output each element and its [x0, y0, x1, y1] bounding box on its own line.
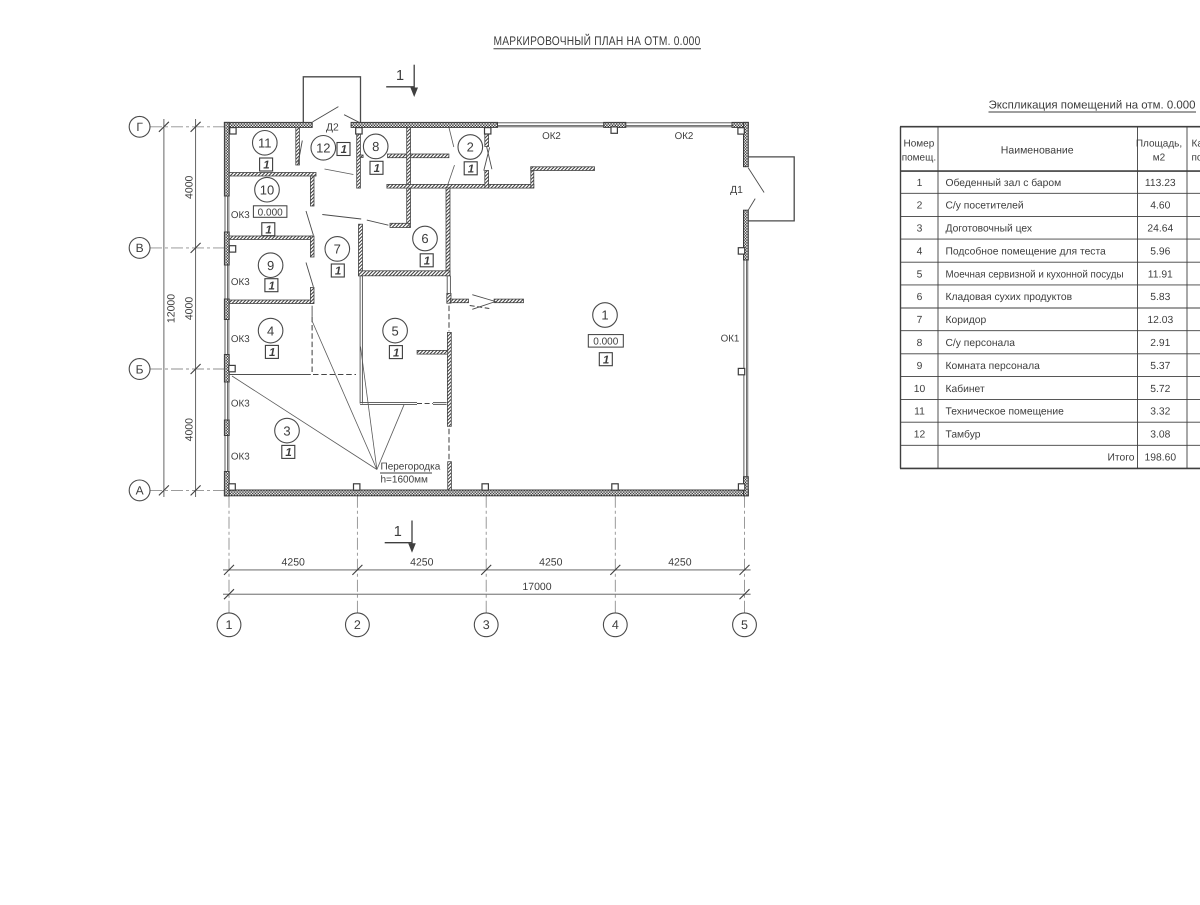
svg-text:3: 3	[917, 224, 923, 235]
svg-text:6: 6	[917, 292, 923, 303]
svg-text:1: 1	[393, 347, 399, 359]
svg-text:11.91: 11.91	[1148, 269, 1173, 280]
svg-text:10: 10	[260, 182, 274, 197]
svg-text:Итого: Итого	[1108, 453, 1135, 464]
svg-text:3.08: 3.08	[1150, 430, 1170, 441]
svg-text:5.72: 5.72	[1150, 384, 1170, 395]
svg-text:4000: 4000	[184, 297, 196, 321]
svg-text:В: В	[136, 241, 144, 255]
svg-text:ОК3: ОК3	[231, 277, 250, 288]
svg-text:С/у посетителей: С/у посетителей	[946, 201, 1024, 212]
svg-text:11: 11	[258, 136, 272, 151]
svg-text:4250: 4250	[668, 557, 692, 569]
svg-text:24.64: 24.64	[1147, 224, 1173, 235]
svg-text:м2: м2	[1153, 153, 1166, 164]
svg-text:1: 1	[396, 68, 404, 84]
svg-text:3: 3	[483, 618, 490, 632]
svg-text:8: 8	[372, 139, 379, 154]
svg-text:9: 9	[917, 361, 923, 372]
svg-text:h=1600мм: h=1600мм	[381, 474, 429, 485]
svg-text:Д1: Д1	[730, 185, 743, 196]
svg-text:4000: 4000	[184, 418, 196, 442]
svg-text:Перегородка: Перегородка	[381, 461, 441, 472]
svg-text:Кабинет: Кабинет	[946, 384, 985, 395]
svg-text:4250: 4250	[410, 557, 434, 569]
svg-text:5: 5	[391, 323, 398, 338]
svg-text:12: 12	[914, 430, 926, 441]
svg-text:12000: 12000	[166, 294, 178, 323]
svg-text:по: по	[1192, 153, 1200, 164]
svg-text:С/у персонала: С/у персонала	[946, 338, 1016, 349]
svg-text:Площадь,: Площадь,	[1136, 139, 1182, 150]
svg-text:Кладовая сухих продуктов: Кладовая сухих продуктов	[946, 292, 1073, 303]
svg-text:ОК1: ОК1	[721, 334, 740, 345]
svg-text:3: 3	[283, 423, 290, 438]
svg-text:1: 1	[917, 178, 923, 189]
svg-text:4000: 4000	[184, 175, 196, 199]
svg-text:1: 1	[374, 163, 380, 175]
svg-text:Подсобное помещение для теста: Подсобное помещение для теста	[946, 246, 1107, 257]
svg-text:5.96: 5.96	[1150, 246, 1170, 257]
svg-text:1: 1	[265, 224, 271, 236]
svg-text:МАРКИРОВОЧНЫЙ ПЛАН НА ОТМ. 0.0: МАРКИРОВОЧНЫЙ ПЛАН НА ОТМ. 0.000	[494, 33, 701, 48]
svg-text:ОК3: ОК3	[231, 452, 250, 463]
svg-text:5: 5	[917, 269, 923, 280]
svg-text:Наименование: Наименование	[1001, 145, 1074, 157]
svg-text:Техническое помещение: Техническое помещение	[946, 407, 1065, 418]
svg-text:Г: Г	[136, 120, 143, 134]
svg-text:Экспликация помещений на отм.: Экспликация помещений на отм. 0.000	[989, 99, 1196, 111]
svg-text:1: 1	[394, 524, 402, 540]
svg-text:6: 6	[421, 231, 428, 246]
svg-text:12: 12	[316, 141, 330, 156]
svg-text:1: 1	[468, 164, 474, 176]
svg-text:ОК3: ОК3	[231, 334, 250, 345]
svg-text:17000: 17000	[522, 581, 551, 593]
svg-text:1: 1	[226, 618, 233, 632]
svg-text:198.60: 198.60	[1145, 453, 1177, 464]
svg-text:Обеденный зал с баром: Обеденный зал с баром	[946, 178, 1062, 189]
svg-text:10: 10	[914, 384, 926, 395]
svg-text:4: 4	[612, 618, 619, 632]
svg-text:5.83: 5.83	[1150, 292, 1170, 303]
svg-text:0.000: 0.000	[593, 337, 618, 348]
svg-text:1: 1	[601, 308, 608, 323]
svg-text:4250: 4250	[539, 557, 563, 569]
svg-text:Ка: Ка	[1192, 139, 1200, 150]
svg-text:Номер: Номер	[904, 139, 935, 150]
svg-text:0.000: 0.000	[258, 207, 283, 218]
svg-text:4: 4	[267, 323, 274, 338]
svg-text:8: 8	[917, 338, 923, 349]
svg-text:113.23: 113.23	[1145, 178, 1176, 189]
svg-text:4250: 4250	[282, 557, 306, 569]
svg-text:Тамбур: Тамбур	[946, 430, 981, 441]
svg-text:А: А	[136, 484, 144, 498]
svg-text:1: 1	[603, 354, 609, 366]
svg-text:1: 1	[424, 256, 430, 268]
svg-text:1: 1	[269, 347, 275, 359]
svg-text:1: 1	[335, 266, 341, 278]
svg-text:5.37: 5.37	[1150, 361, 1170, 372]
svg-text:12.03: 12.03	[1147, 315, 1173, 326]
svg-text:7: 7	[917, 315, 923, 326]
svg-text:4.60: 4.60	[1150, 201, 1170, 212]
svg-text:11: 11	[914, 407, 925, 418]
svg-text:Моечная сервизной и кухонной п: Моечная сервизной и кухонной посуды	[946, 269, 1124, 280]
svg-text:2: 2	[354, 618, 361, 632]
svg-text:ОК3: ОК3	[231, 210, 250, 221]
svg-text:1: 1	[285, 447, 291, 459]
svg-text:1: 1	[268, 280, 274, 292]
svg-text:7: 7	[334, 242, 341, 257]
svg-text:1: 1	[341, 144, 347, 156]
svg-text:4: 4	[917, 246, 923, 257]
svg-text:5: 5	[741, 618, 748, 632]
svg-text:3.32: 3.32	[1150, 407, 1170, 418]
svg-text:ОК3: ОК3	[231, 399, 250, 410]
svg-text:2: 2	[917, 201, 923, 212]
svg-text:помещ.: помещ.	[902, 153, 936, 164]
svg-text:Д2: Д2	[326, 123, 339, 134]
svg-text:Доготовочный цех: Доготовочный цех	[946, 224, 1033, 235]
svg-text:ОК2: ОК2	[675, 131, 694, 142]
svg-text:9: 9	[267, 258, 274, 273]
svg-text:ОК2: ОК2	[542, 131, 561, 142]
svg-text:2: 2	[467, 140, 474, 155]
svg-text:Коридор: Коридор	[946, 315, 987, 326]
svg-text:1: 1	[263, 160, 269, 172]
svg-text:Б: Б	[136, 362, 144, 376]
svg-text:2.91: 2.91	[1150, 338, 1170, 349]
svg-text:Комната персонала: Комната персонала	[946, 361, 1041, 372]
